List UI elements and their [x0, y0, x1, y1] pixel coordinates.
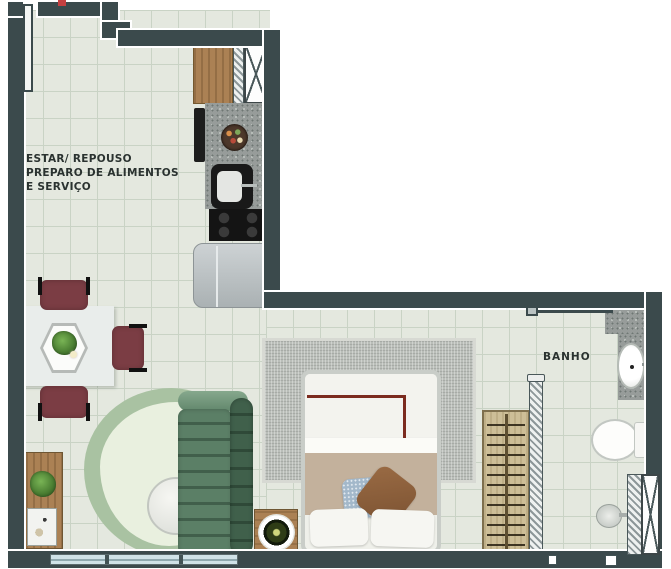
fruit-bowl: [221, 124, 248, 151]
washbasin: [617, 343, 645, 389]
sideboard-plant: [30, 471, 56, 497]
side-table: [254, 509, 298, 554]
sofa-backrest: [230, 398, 253, 555]
wall-top-kitchen: [118, 30, 280, 46]
shaft-hatch: [627, 474, 642, 555]
wall-right-upper: [264, 30, 280, 308]
bed-duvet: [305, 374, 437, 440]
side-table-plant-tray: [258, 514, 295, 551]
wall-top-b: [38, 2, 110, 16]
window-mullion-1: [105, 555, 109, 564]
rack-rail: [505, 414, 508, 549]
living-room-label: ESTAR/ REPOUSO PREPARO DE ALIMENTOS E SE…: [26, 152, 179, 194]
dining-chair-top: [40, 280, 88, 310]
window-bottom-left: [50, 554, 238, 565]
bathroom-label: BANHO: [543, 350, 591, 364]
clothes-rack: [482, 410, 530, 553]
cooktop: [209, 209, 267, 241]
floor-plan: ESTAR/ REPOUSO PREPARO DE ALIMENTOS E SE…: [0, 0, 671, 569]
refrigerator: [193, 243, 267, 308]
kitchen-wall-panel: [194, 108, 205, 162]
bed-fold: [305, 438, 437, 453]
sofa-seat: [178, 409, 232, 555]
kitchen-sink: [211, 164, 253, 209]
bath-partition-wall: [529, 380, 543, 555]
basin-drain: [630, 365, 634, 369]
sliding-door-track: [537, 310, 613, 313]
toilet-bowl: [591, 419, 639, 461]
kitchen-faucet: [241, 184, 257, 187]
sofa: [176, 391, 254, 555]
kitchen-upper-cabinet: [193, 44, 233, 104]
shaft-xbox: [641, 474, 660, 555]
refrigerator-divider: [216, 246, 218, 307]
living-label-line3: E SERVIÇO: [26, 180, 179, 194]
living-label-line2: PREPARO DE ALIMENTOS: [26, 166, 179, 180]
wall-top-bedroom: [264, 292, 662, 308]
bath-partition-cap: [527, 374, 545, 382]
kitchen-duct-hatch: [233, 44, 244, 104]
bed-throw-line-v: [403, 395, 406, 439]
bath-wall-notch-1: [548, 555, 557, 565]
bath-wall-notch-2: [605, 555, 617, 566]
kitchen-sink-basin: [217, 171, 242, 202]
dining-chair-bottom: [40, 386, 88, 418]
bed: [301, 370, 441, 554]
dining-chair-right: [112, 326, 144, 370]
bed-throw-line-h: [307, 395, 406, 398]
sideboard: [18, 452, 63, 549]
wall-top-a: [8, 2, 23, 16]
pillow-white-left: [309, 508, 368, 547]
sliding-door-handle: [526, 306, 538, 316]
sideboard-tray: [27, 508, 57, 546]
living-label-line1: ESTAR/ REPOUSO: [26, 152, 179, 166]
entry-door-leaf: [23, 4, 33, 92]
table-candle: [70, 351, 77, 358]
red-marker: [58, 0, 66, 6]
pillow-white-right: [370, 509, 434, 548]
wall-left: [8, 2, 24, 558]
window-glass-line: [51, 559, 237, 561]
window-mullion-2: [179, 555, 183, 564]
